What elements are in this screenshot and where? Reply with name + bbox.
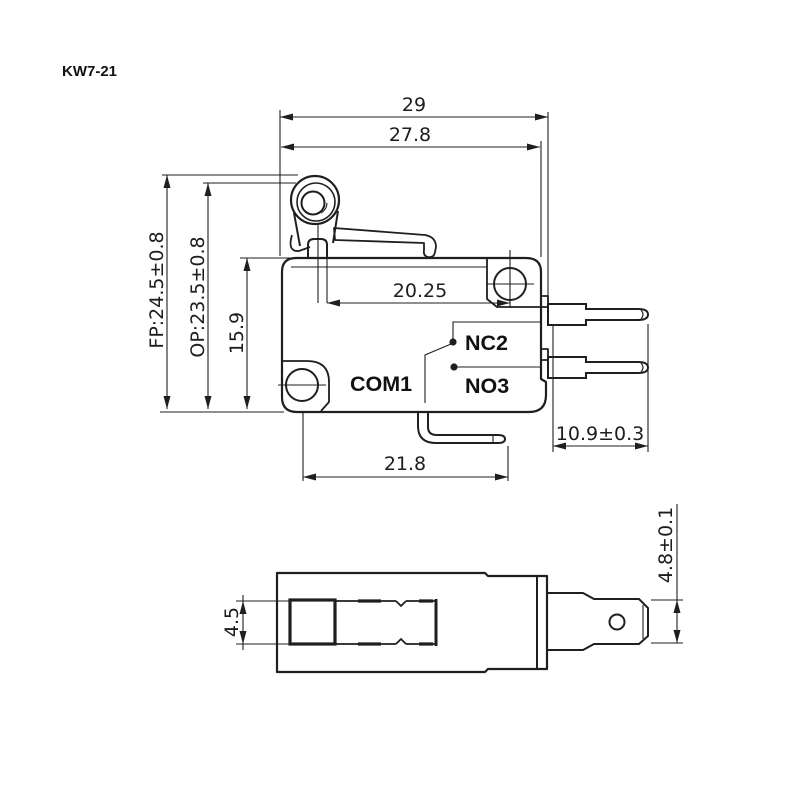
- front-view: NC2 COM1 NO3 20.25: [278, 176, 648, 443]
- technical-drawing-page: KW7-21: [0, 0, 800, 800]
- plunger-width-dimension: 4.5: [221, 595, 247, 650]
- dim-plunger-width: 4.5: [221, 607, 243, 637]
- terminal-no-blade: [548, 357, 648, 378]
- microswitch-drawing: KW7-21: [0, 0, 800, 800]
- terminal-hole: [610, 615, 625, 630]
- dim-operating-position: OP:23.5±0.8: [187, 236, 209, 357]
- com-terminal: [418, 412, 505, 443]
- lever-arm: [334, 228, 436, 257]
- terminal-nc-blade: [548, 304, 648, 325]
- dim-free-position: FP:24.5±0.8: [146, 231, 168, 348]
- dim-body-width: 27.8: [389, 124, 431, 146]
- nc-terminal-label: NC2: [465, 331, 508, 355]
- dim-terminal-length: 10.9±0.3: [556, 423, 644, 445]
- plunger-bottom-view: [290, 600, 335, 644]
- com-terminal-label: COM1: [350, 372, 412, 396]
- terminal-width-dimension: 4.8±0.1: [651, 504, 683, 643]
- dim-plunger-to-hole: 20.25: [393, 280, 447, 302]
- roller-lever: [291, 176, 436, 262]
- no-terminal-label: NO3: [465, 374, 509, 398]
- bottom-view: 4.5 4.8±0.1: [221, 504, 683, 672]
- bottom-terminal: [547, 593, 648, 650]
- part-number-title: KW7-21: [62, 63, 117, 80]
- nc-contact-dot: [449, 338, 456, 345]
- dim-com-span: 21.8: [384, 453, 426, 475]
- dim-total-width: 29: [402, 94, 426, 116]
- dim-terminal-width: 4.8±0.1: [655, 507, 677, 583]
- right-terminals: [541, 296, 648, 378]
- dim-body-height: 15.9: [226, 312, 248, 354]
- no-contact-dot: [450, 363, 457, 370]
- roller-pin: [302, 192, 325, 215]
